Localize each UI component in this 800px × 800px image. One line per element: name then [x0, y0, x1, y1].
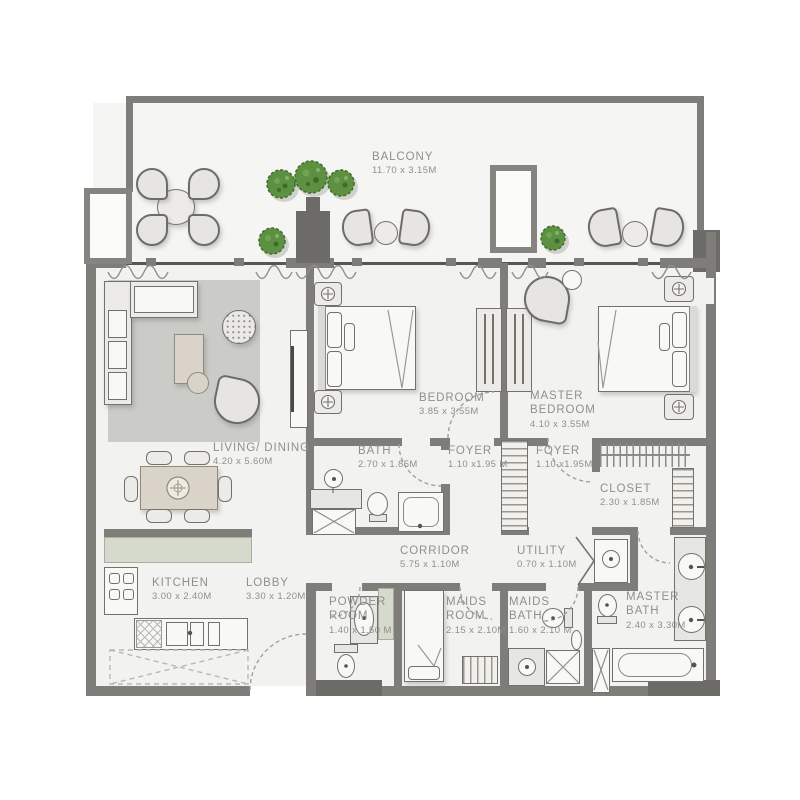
room-name: MASTER BEDROOM	[530, 389, 610, 418]
window-pier	[660, 258, 706, 268]
pillow	[672, 312, 687, 348]
towel-rail	[592, 648, 610, 693]
wardrobe-handle	[522, 314, 524, 384]
sofa-cushion	[108, 372, 127, 400]
column	[296, 211, 330, 263]
room-dims: 0.70 x 1.10M	[517, 559, 577, 571]
sofa-cushion	[108, 310, 127, 338]
side-table	[622, 221, 648, 247]
dining-table	[140, 466, 218, 510]
room-dims: 2.40 x 3.30M	[626, 620, 700, 632]
wall	[126, 96, 133, 192]
wall	[104, 529, 252, 537]
bathtub-inner	[403, 497, 439, 527]
dishwasher	[136, 620, 162, 648]
dining-chair	[218, 476, 232, 502]
room-label-utility: UTILITY 0.70 x 1.10M	[517, 544, 577, 572]
pillow	[327, 312, 342, 348]
room-dims: 1.10 x1.95M	[536, 459, 593, 471]
room-dims: 1.60 x 2.10 M	[509, 625, 571, 637]
room-label-closet: CLOSET 2.30 x 1.85M	[600, 482, 660, 510]
room-name: BEDROOM	[419, 391, 485, 405]
window-mullion	[234, 258, 244, 266]
room-label-living-dining: LIVING/ DINING 4.20 x 5.60M	[213, 441, 310, 469]
burner	[109, 589, 120, 600]
side-table	[374, 221, 398, 245]
room-dims: 3.85 x 3.55M	[419, 406, 485, 418]
balcony-chair	[136, 214, 168, 246]
shower	[312, 509, 356, 535]
room-dims: 2.70 x 1.85M	[358, 459, 418, 471]
room-dims: 11.70 x 3.15M	[372, 165, 437, 177]
side-table	[187, 372, 209, 394]
pillow	[408, 666, 440, 680]
washbasin	[518, 658, 536, 676]
room-dims: 5.75 x 1.10M	[400, 559, 470, 571]
room-label-corridor: CORRIDOR 5.75 x 1.10M	[400, 544, 470, 572]
balcony-chair	[188, 168, 220, 200]
room-dims: 2.30 x 1.85M	[600, 497, 660, 509]
wall	[630, 535, 638, 585]
balcony-chair	[136, 168, 168, 200]
window-mullion	[638, 258, 648, 266]
room-label-maids-bath: MAIDS BATH 1.60 x 2.10 M	[509, 595, 571, 637]
nightstand	[664, 276, 694, 302]
balcony-cabinet	[490, 165, 537, 253]
room-dims: 4.20 x 5.60M	[213, 456, 310, 468]
kitchen-counter	[104, 537, 252, 563]
room-name: UTILITY	[517, 544, 577, 558]
wardrobe	[476, 308, 502, 392]
wardrobe-handle	[514, 314, 516, 384]
side-table	[562, 270, 582, 290]
window-pier	[478, 258, 502, 268]
washbasin	[571, 630, 582, 650]
closet-shelves	[672, 468, 694, 528]
window-pier	[528, 258, 546, 268]
room-label-powder-room: POWDER ROOM 1.40 x 1.50 M	[329, 595, 407, 637]
wall	[670, 527, 706, 535]
dining-chair	[184, 509, 210, 523]
room-label-lobby: LOBBY 3.30 x 1.20M	[246, 576, 306, 604]
room-dims: 1.10 x1.95 M	[448, 459, 508, 471]
column	[316, 680, 382, 696]
headboard	[318, 306, 326, 390]
toilet	[367, 492, 388, 516]
wall	[86, 686, 250, 696]
vanity	[310, 489, 362, 509]
planter-box	[84, 188, 132, 264]
wardrobe-handle	[492, 314, 494, 384]
nightstand	[314, 282, 342, 306]
burner	[123, 573, 134, 584]
window-glass-line	[96, 262, 706, 265]
room-label-master-bedroom: MASTER BEDROOM 4.10 x 3.55M	[530, 389, 610, 431]
room-name: BALCONY	[372, 150, 437, 164]
washing-machine-drum	[602, 550, 620, 568]
toilet-tank	[334, 644, 358, 653]
room-name: CLOSET	[600, 482, 660, 496]
toilet-tank	[597, 616, 617, 624]
room-name: MAIDS BATH	[509, 595, 571, 624]
balcony-chair	[188, 214, 220, 246]
wall	[584, 583, 592, 686]
burner	[123, 589, 134, 600]
wall	[306, 583, 316, 686]
room-label-foyer-a: FOYER 1.10 x1.95 M	[448, 444, 508, 472]
room-label-bedroom: BEDROOM 3.85 x 3.55M	[419, 391, 485, 419]
toilet	[598, 594, 617, 617]
washbasin	[678, 553, 705, 580]
wall	[592, 446, 600, 472]
room-dims: 2.15 x 2.10M	[446, 625, 508, 637]
room-name: BATH	[358, 444, 418, 458]
room-dims: 1.40 x 1.50 M	[329, 625, 407, 637]
hanging-rail-rod	[600, 454, 690, 456]
wall	[126, 96, 704, 103]
wall-niche	[702, 278, 714, 304]
window-mullion	[574, 258, 584, 266]
room-dims: 3.30 x 1.20M	[246, 591, 306, 603]
room-name: MASTER BATH	[626, 590, 700, 619]
room-dims: 3.00 x 2.40M	[152, 591, 212, 603]
room-name: LOBBY	[246, 576, 306, 590]
room-dims: 4.10 x 3.55M	[530, 419, 610, 431]
ottoman	[222, 310, 256, 344]
room-name: CORRIDOR	[400, 544, 470, 558]
kitchen-sink	[190, 622, 204, 646]
burner	[109, 573, 120, 584]
dining-chair	[146, 451, 172, 465]
pillow	[327, 351, 342, 387]
dining-chair	[124, 476, 138, 502]
window-mullion	[446, 258, 456, 266]
floor-plan: BALCONY 11.70 x 3.15M LIVING/ DINING 4.2…	[0, 0, 800, 800]
shower	[546, 650, 580, 684]
bathtub-inner	[618, 653, 692, 677]
wardrobe-handle	[484, 314, 486, 384]
sofa-cushion	[134, 286, 194, 313]
window-mullion	[146, 258, 156, 266]
toilet	[337, 654, 355, 678]
room-name: MAIDS ROOM	[446, 595, 508, 624]
window-mullion	[352, 258, 362, 266]
wall	[697, 96, 704, 234]
pillow	[672, 351, 687, 387]
room-label-maids-room: MAIDS ROOM 2.15 x 2.10M	[446, 595, 508, 637]
kitchen-sink	[166, 622, 188, 646]
wardrobe	[506, 308, 532, 392]
dining-chair	[184, 451, 210, 465]
room-label-master-bath: MASTER BATH 2.40 x 3.30M	[626, 590, 700, 632]
room-name: KITCHEN	[152, 576, 212, 590]
tv-screen	[291, 346, 294, 412]
washbasin	[324, 469, 343, 488]
pillow	[344, 323, 355, 351]
room-name: POWDER ROOM	[329, 595, 407, 624]
room-name: FOYER	[448, 444, 508, 458]
dining-chair	[146, 509, 172, 523]
appliance	[208, 622, 220, 646]
wall	[592, 527, 638, 535]
column	[648, 680, 720, 696]
headboard	[689, 306, 697, 392]
wall	[86, 232, 96, 692]
room-label-bath: BATH 2.70 x 1.85M	[358, 444, 418, 472]
nightstand	[664, 394, 694, 420]
nightstand	[314, 390, 342, 414]
sofa-cushion	[108, 341, 127, 369]
room-label-foyer-b: FOYER 1.10 x1.95M	[536, 444, 593, 472]
room-name: LIVING/ DINING	[213, 441, 310, 455]
closet-shelves	[462, 656, 498, 684]
room-label-kitchen: KITCHEN 3.00 x 2.40M	[152, 576, 212, 604]
room-name: FOYER	[536, 444, 593, 458]
room-label-balcony: BALCONY 11.70 x 3.15M	[372, 150, 437, 178]
pillow	[659, 323, 670, 351]
